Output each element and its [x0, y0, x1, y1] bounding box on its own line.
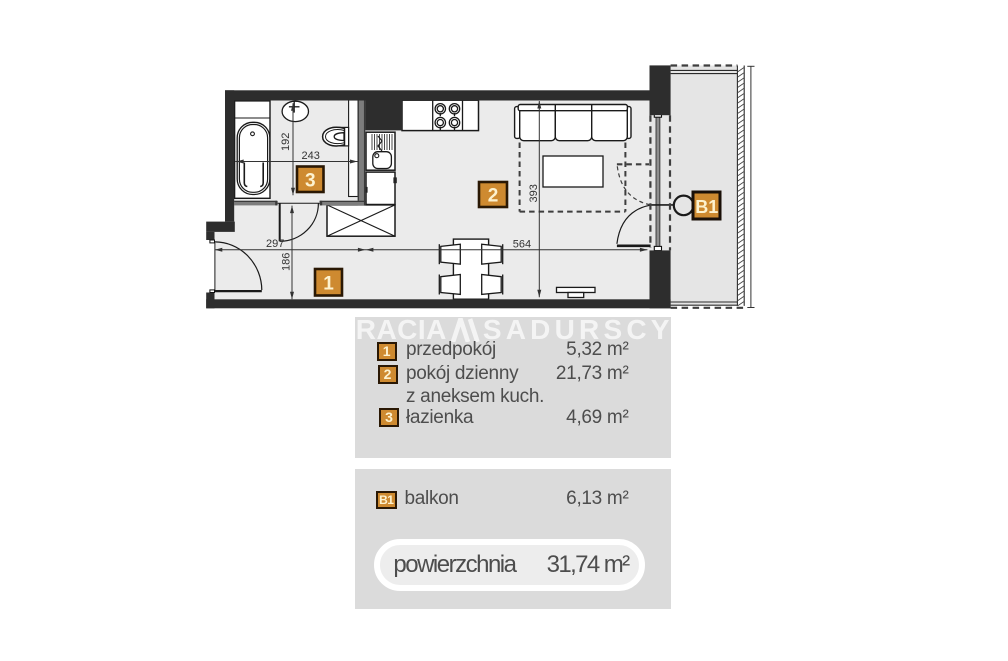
svg-text:1: 1	[323, 274, 334, 295]
svg-text:2: 2	[488, 186, 499, 207]
svg-text:393: 393	[528, 184, 540, 202]
svg-text:186: 186	[280, 253, 292, 271]
svg-text:297: 297	[266, 238, 284, 250]
svg-text:3: 3	[305, 171, 316, 192]
svg-text:243: 243	[302, 150, 320, 162]
svg-text:192: 192	[280, 133, 292, 151]
svg-text:564: 564	[513, 239, 531, 251]
svg-text:B1: B1	[695, 197, 718, 217]
